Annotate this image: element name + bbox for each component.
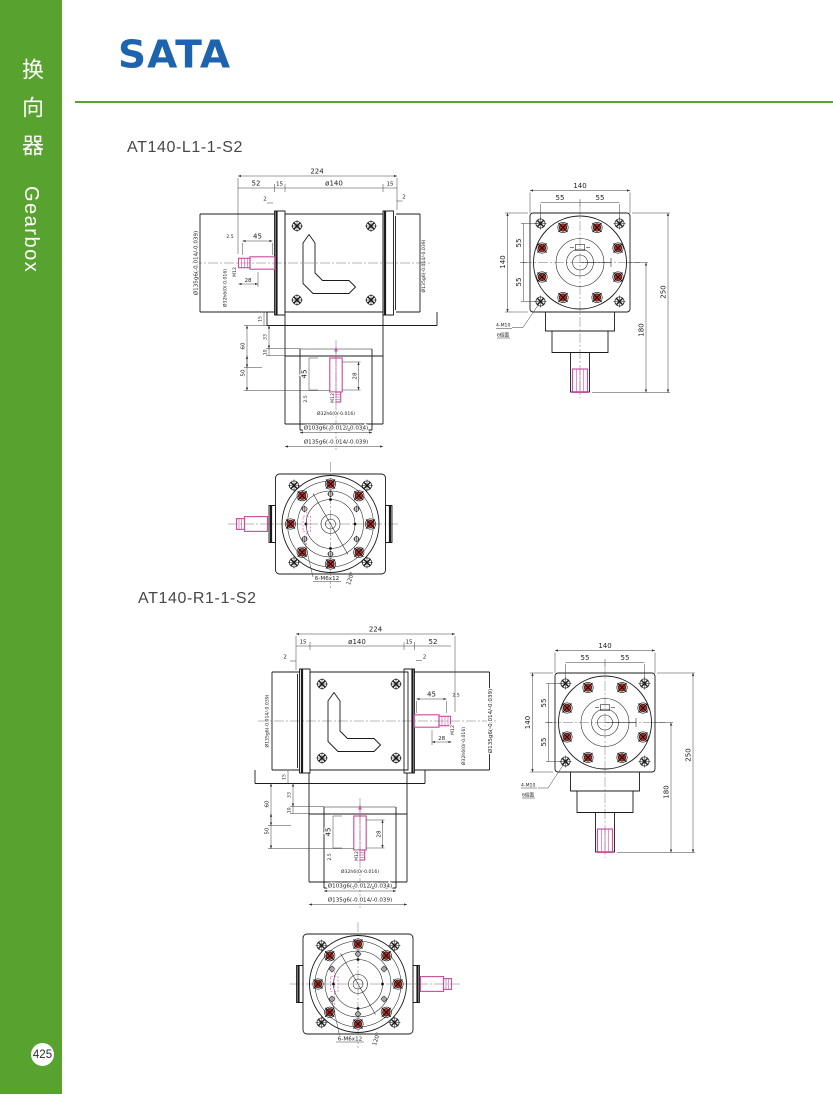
corner-hole-icon: [361, 480, 373, 492]
dim-hole-pitch: 55: [540, 699, 548, 708]
dim-hole-pitch: 55: [596, 194, 605, 202]
bolt-icon: [592, 292, 602, 302]
m6-hole-icon: [381, 966, 388, 973]
dim-step: 50: [241, 369, 247, 377]
dim-shaft-length: 52: [429, 638, 438, 646]
dim-step: 33: [287, 792, 293, 798]
bolt-icon: [285, 519, 295, 529]
corner-hole-icon: [389, 1017, 401, 1029]
dim-flange-size: 140: [598, 642, 611, 650]
bolt-icon: [613, 272, 623, 282]
label-mounting-holes: 4-M10: [521, 783, 535, 789]
dim-step: 15: [282, 774, 288, 780]
bolt-icon: [583, 752, 593, 762]
label-faces: 6個面: [497, 332, 510, 339]
dim-thread-depth: 28: [244, 278, 252, 284]
dim-step: 10: [287, 807, 293, 813]
dim-chamfer: 2.5: [327, 853, 333, 860]
corner-hole-icon: [361, 557, 373, 569]
m6-hole-icon: [355, 1011, 362, 1018]
m6-hole-icon: [327, 491, 334, 498]
dim-step: 50: [265, 827, 271, 835]
r1-front-view: 224 15 ø140 15 52 2 2 45 2.5: [258, 626, 497, 774]
corner-hole-icon: [316, 1017, 328, 1029]
dim-flange-size: 140: [499, 255, 507, 268]
m6-hole-icon: [381, 996, 388, 1003]
m6-hole-icon: [353, 506, 360, 513]
bolt-icon: [325, 1007, 335, 1017]
dim-overall-width: 224: [310, 168, 324, 176]
corner-hole-icon: [288, 557, 300, 569]
corner-hole-icon: [316, 940, 328, 952]
m6-hole-icon: [327, 551, 334, 558]
l1-front-view: 224 52 15 ø140 15 2 2 45 2.5: [192, 168, 430, 316]
dim-thread-depth: 28: [438, 736, 446, 742]
corner-hole-icon: [316, 752, 328, 764]
dim-spigot-dia-left: Ø135g6(-0.014/-0.039): [264, 694, 271, 747]
corner-hole-icon: [390, 752, 402, 764]
r1-bottom-view: 6-M6x12 120°: [290, 922, 462, 1048]
dim-step: 15: [258, 316, 264, 322]
dim-thread: M12: [354, 851, 360, 861]
bolt-icon: [617, 752, 627, 762]
dim-overall-height: 250: [685, 748, 693, 761]
dim-hole-pitch: 55: [515, 239, 523, 248]
bolt-icon: [353, 939, 363, 949]
dim-hole-pitch: 55: [515, 278, 523, 287]
label-tapped-holes: 6-M6x12: [338, 1037, 362, 1043]
dim-step: 10: [263, 349, 269, 355]
dim-chamfer: 2.5: [226, 234, 233, 240]
dim-overall-width: 224: [369, 626, 383, 634]
bolt-icon: [613, 243, 623, 253]
l1-face-cutout: [303, 235, 356, 294]
label-mounting-holes: 4-M10: [496, 323, 510, 329]
corner-hole-icon: [291, 294, 303, 306]
bolt-icon: [558, 222, 568, 232]
bolt-icon: [393, 979, 403, 989]
dim-flange: 15: [299, 640, 307, 646]
bolt-icon: [537, 272, 547, 282]
bolt-icon: [638, 703, 648, 713]
dim-shaft-dia: Ø32h6(0/-0.016): [460, 727, 467, 765]
label-faces: 6個面: [522, 792, 535, 799]
corner-hole-icon: [316, 678, 328, 690]
r1-side-view: 140 55 55 140 55 55 250: [521, 642, 695, 858]
dim-shaft-usable: 45: [427, 691, 436, 699]
bolt-icon: [558, 292, 568, 302]
dim-thread-depth: 28: [353, 372, 359, 380]
dim-lip: 2: [263, 197, 267, 203]
bolt-icon: [325, 559, 335, 569]
r1-down-shaft: [598, 829, 613, 853]
dim-flange-size: 140: [524, 716, 532, 729]
corner-hole-icon: [639, 678, 651, 690]
technical-drawings: 224 52 15 ø140 15 2 2 45 2.5: [0, 0, 833, 1100]
corner-hole-icon: [389, 940, 401, 952]
bolt-icon: [562, 732, 572, 742]
dim-spigot-dia: Ø135g6(-0.014/-0.039): [304, 439, 369, 446]
bolt-icon: [313, 979, 323, 989]
bolt-icon: [562, 703, 572, 713]
drawing-at140-l1: 224 52 15 ø140 15 2 2 45 2.5: [192, 168, 670, 589]
bolt-icon: [617, 682, 627, 692]
bolt-icon: [592, 222, 602, 232]
dim-spigot-dia: Ø135g6(-0.014/-0.039): [487, 689, 494, 754]
corner-hole-icon: [390, 678, 402, 690]
dim-body: ø140: [348, 638, 366, 646]
l1-section-view: 45 2.5 28 M12 Ø32h6(0/-0.016) Ø103g6(-0.…: [241, 312, 438, 452]
bolt-icon: [325, 951, 335, 961]
dim-spigot-dia-right: Ø135g6(-0.014/-0.039): [420, 239, 427, 292]
bolt-icon: [297, 491, 307, 501]
corner-hole-icon: [639, 756, 651, 768]
r1-section-view: 45 2.5 28 M12 Ø32h6(0/-0.016) Ø103g6(-0.…: [255, 770, 425, 910]
bolt-icon: [638, 732, 648, 742]
dim-step: 33: [263, 334, 269, 340]
corner-hole-icon: [291, 220, 303, 232]
dim-hole-pitch: 55: [540, 738, 548, 747]
dim-center-height: 180: [663, 785, 671, 798]
dim-chamfer: 2.5: [303, 395, 309, 402]
dim-shaft-length: 52: [252, 180, 261, 188]
corner-hole-icon: [365, 220, 377, 232]
dim-lip: 2: [283, 655, 287, 661]
corner-hole-icon: [614, 218, 626, 230]
corner-hole-icon: [614, 296, 626, 308]
dim-pilot-dia: Ø103g6(-0.012/-0.034): [304, 425, 369, 432]
dim-flange: 15: [405, 640, 413, 646]
dim-flange: 15: [386, 181, 394, 187]
dim-shaft-dia: Ø32h6(0/-0.016): [341, 868, 379, 875]
bolt-icon: [353, 1019, 363, 1029]
catalog-page: 换向器Gearbox 425 SATA AT140-L1-1-S2 AT140-…: [0, 0, 833, 1100]
dim-spigot-dia: Ø135g6(-0.014/-0.039): [328, 897, 393, 904]
label-tapped-holes: 6-M6x12: [315, 576, 339, 582]
bolt-icon: [354, 547, 364, 557]
dim-thread-depth: 28: [377, 830, 383, 838]
dim-step: 60: [265, 800, 271, 808]
dim-hole-pitch: 55: [556, 194, 565, 202]
dim-shaft-usable: 45: [253, 233, 262, 241]
dim-hole-pitch: 55: [621, 654, 630, 662]
bolt-icon: [381, 951, 391, 961]
l1-side-view: 140 55 55 140 55 55 250: [496, 182, 670, 398]
dim-thread: M12: [450, 725, 456, 735]
dim-pilot-dia: Ø103g6(-0.012/-0.034): [328, 883, 393, 890]
dim-thread: M12: [232, 267, 238, 277]
corner-hole-icon: [365, 294, 377, 306]
dim-thread: M12: [330, 393, 336, 403]
bolt-icon: [537, 243, 547, 253]
dim-body: ø140: [325, 180, 343, 188]
dim-lip: 2: [402, 195, 406, 201]
m6-hole-icon: [353, 536, 360, 543]
bolt-icon: [583, 682, 593, 692]
l1-bottom-view: 6-M6x12 120°: [228, 462, 400, 588]
dim-shaft-dia: Ø32h6(0/-0.016): [317, 410, 355, 417]
dim-flange: 15: [276, 181, 284, 187]
dim-chamfer: 2.5: [452, 693, 459, 699]
dim-lip: 2: [423, 655, 427, 661]
drawing-at140-r1: 224 15 ø140 15 52 2 2 45 2.5: [255, 626, 695, 1049]
dim-shaft-dia: Ø32h6(0/-0.016): [222, 269, 229, 307]
dim-center-height: 180: [638, 323, 646, 336]
bolt-icon: [381, 1007, 391, 1017]
dim-hole-pitch: 55: [581, 654, 590, 662]
label-hole-angle: 120°: [346, 571, 356, 586]
bolt-icon: [325, 479, 335, 489]
bolt-icon: [365, 519, 375, 529]
dim-shaft-usable: 45: [325, 828, 333, 837]
dim-step: 60: [241, 342, 247, 350]
r1-face-cutout: [328, 693, 381, 752]
dim-spigot-dia: Ø135g6(-0.014/-0.039): [193, 231, 200, 296]
bolt-icon: [354, 491, 364, 501]
dim-flange-size: 140: [573, 182, 586, 190]
corner-hole-icon: [288, 480, 300, 492]
m6-hole-icon: [355, 951, 362, 958]
dim-shaft-usable: 45: [301, 370, 309, 379]
l1-down-shaft: [573, 369, 588, 393]
dim-overall-height: 250: [660, 285, 668, 298]
bolt-icon: [297, 547, 307, 557]
